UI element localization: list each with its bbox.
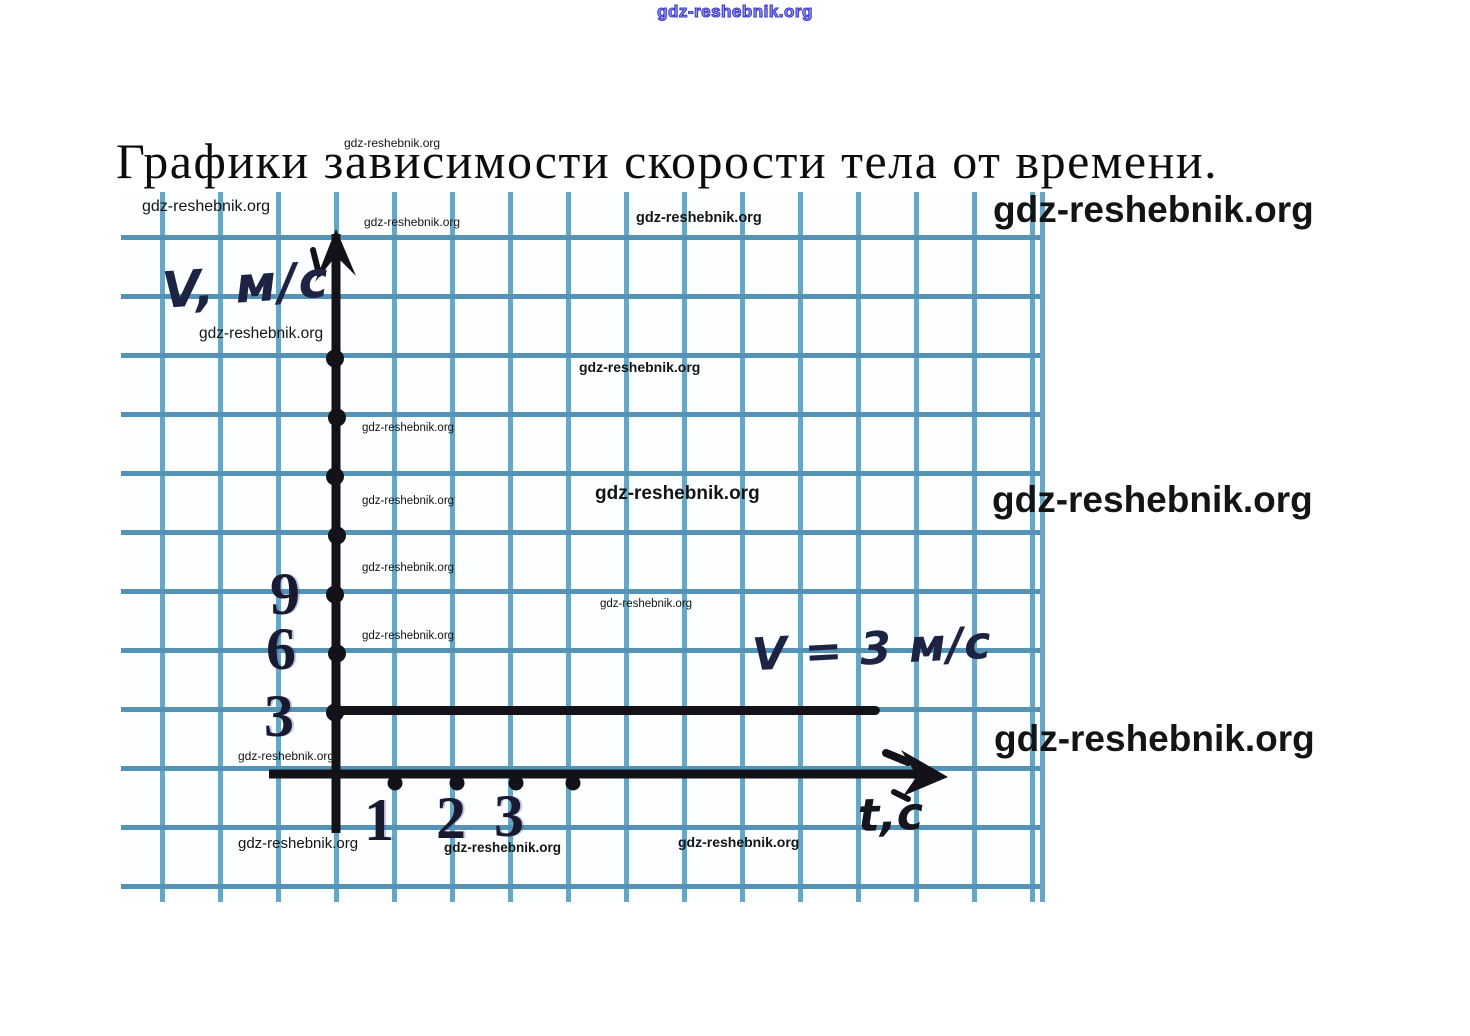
watermark: gdz-reshebnik.org	[362, 631, 454, 643]
x-tick-label-1: 1	[364, 790, 394, 850]
x-axis-label: t,c	[857, 791, 924, 838]
watermark: gdz-reshebnik.org	[199, 326, 323, 342]
watermark: gdz-reshebnik.org	[994, 720, 1315, 757]
watermark: gdz-reshebnik.org	[362, 423, 454, 435]
watermark: gdz-reshebnik.org	[238, 750, 334, 762]
watermark: gdz-reshebnik.org	[600, 599, 692, 611]
watermark: gdz-reshebnik.org	[595, 484, 760, 503]
y-tick-label-3: 3	[264, 686, 294, 746]
watermark: gdz-reshebnik.org	[992, 481, 1313, 518]
watermark: gdz-reshebnik.org	[362, 496, 454, 508]
watermark: gdz-reshebnik.org	[678, 835, 799, 849]
watermark: gdz-reshebnik.org	[238, 836, 358, 851]
y-axis-label: V, м/с	[160, 254, 331, 316]
lesson-image: gdz-reshebnik.org Графики зависимости ск…	[0, 0, 1470, 1036]
watermark: gdz-reshebnik.org	[636, 211, 762, 226]
watermark: gdz-reshebnik.org	[993, 191, 1314, 228]
watermark: gdz-reshebnik.org	[344, 137, 440, 149]
y-tick-label-9: 9	[270, 564, 300, 624]
x-tick-label-2: 2	[436, 788, 466, 848]
y-tick-label-6: 6	[266, 619, 296, 679]
series-annotation: V = 3 м/с	[751, 620, 993, 677]
watermark: gdz-reshebnik.org	[142, 199, 270, 215]
watermark: gdz-reshebnik.org	[362, 563, 454, 575]
watermark: gdz-reshebnik.org	[444, 841, 561, 855]
x-tick-label-3: 3	[494, 786, 524, 846]
watermark: gdz-reshebnik.org	[364, 216, 460, 228]
watermark: gdz-reshebnik.org	[579, 360, 700, 374]
